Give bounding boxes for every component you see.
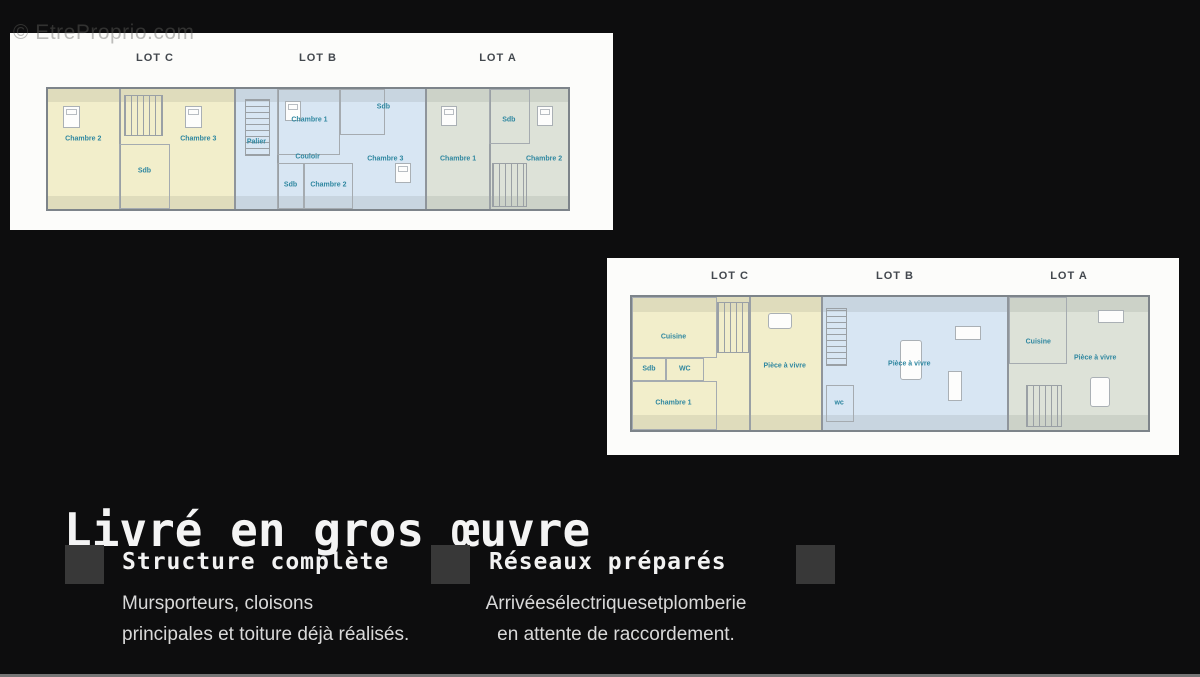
feature-body-structure: Mursporteurs, cloisons principales et to… <box>122 588 432 650</box>
room-label: Chambre 2 <box>310 182 346 189</box>
dining-table-icon <box>1090 377 1110 407</box>
room-label: Sdb <box>642 365 655 372</box>
room-label: Chambre 1 <box>440 155 476 162</box>
bed-icon <box>185 106 202 128</box>
room-label: Chambre 2 <box>526 155 562 162</box>
bathroom-box <box>340 89 385 135</box>
room-label: Chambre 1 <box>655 400 691 407</box>
lot-a-section: Cuisine Pièce à vivre <box>1009 297 1148 430</box>
lot-b-section: Palier Chambre 1 Sdb Couloir Sdb Chambre… <box>234 89 428 209</box>
feature-body-reseaux: Arrivéesélectriquesetplomberie en attent… <box>455 588 777 650</box>
room-label: Sdb <box>377 104 390 111</box>
room-label: Chambre 2 <box>65 136 101 143</box>
feature-bullet-square <box>65 545 104 584</box>
bed-icon <box>537 106 553 126</box>
bed-icon <box>63 106 80 128</box>
room-label: Cuisine <box>1026 339 1051 346</box>
feature-bullet-square <box>431 545 470 584</box>
room-label: Couloir <box>295 154 320 161</box>
building-outline: Cuisine Sdb WC Chambre 1 Pièce à vivre w… <box>630 295 1150 432</box>
lot-b-section: wc Pièce à vivre <box>821 297 1010 430</box>
sofa-icon <box>948 371 962 401</box>
room-label: Cuisine <box>661 333 686 340</box>
feature-line: Mursporteurs, cloisons <box>122 588 432 619</box>
room-label: Chambre 3 <box>367 155 403 162</box>
lot-title-b: LOT B <box>258 52 378 64</box>
feature-line: principales et toiture déjà réalisés. <box>122 619 432 650</box>
sofa-icon <box>1098 310 1124 323</box>
feature-title-structure: Structure complète <box>122 549 389 575</box>
room-label: Pièce à vivre <box>1074 355 1116 362</box>
room-label: Sdb <box>284 182 297 189</box>
bed-icon <box>441 106 457 126</box>
stairs-icon <box>492 163 527 206</box>
bed-icon <box>395 163 411 183</box>
room-label: WC <box>679 365 691 372</box>
lot-title-b: LOT B <box>835 270 955 282</box>
lot-title-a: LOT A <box>438 52 558 64</box>
lot-c-section: Chambre 2 Sdb Chambre 3 <box>48 89 234 209</box>
lot-a-section: Chambre 1 Sdb Chambre 2 <box>427 89 568 209</box>
room-label: wc <box>834 400 843 407</box>
sofa-icon <box>955 326 981 340</box>
room-label: Chambre 3 <box>180 136 216 143</box>
lot-title-c: LOT C <box>670 270 790 282</box>
stairs-icon <box>245 99 270 157</box>
room-label: Sdb <box>502 117 515 124</box>
bathroom-box <box>119 144 171 209</box>
feature-line: Arrivéesélectriquesetplomberie <box>455 588 777 619</box>
lot-c-section: Cuisine Sdb WC Chambre 1 Pièce à vivre <box>632 297 821 430</box>
dining-table-icon <box>768 313 792 329</box>
lot-title-a: LOT A <box>1009 270 1129 282</box>
feature-line: en attente de raccordement. <box>455 619 777 650</box>
room-label: Sdb <box>138 167 151 174</box>
floor-plan-ground-panel: LOT C LOT B LOT A Cuisine Sdb WC Chambre… <box>607 258 1179 455</box>
feature-title-reseaux: Réseaux préparés <box>489 549 727 575</box>
kitchen-box <box>632 297 717 358</box>
room-label: Chambre 1 <box>291 117 327 124</box>
wall <box>749 297 751 430</box>
feature-bullet-square <box>796 545 835 584</box>
stairs-icon <box>717 302 749 353</box>
building-outline: Chambre 2 Sdb Chambre 3 Palier Chambre 1… <box>46 87 570 211</box>
floor-plan-upper-panel: LOT C LOT B LOT A Chambre 2 Sdb Chambre … <box>10 33 613 230</box>
watermark: © EtreProprio.com <box>13 21 195 45</box>
room-label: Pièce à vivre <box>888 360 930 367</box>
lot-title-c: LOT C <box>95 52 215 64</box>
stairs-icon <box>1026 385 1062 428</box>
stairs-icon <box>124 95 163 136</box>
kitchen-box <box>1009 297 1067 364</box>
room-label: Pièce à vivre <box>763 363 805 370</box>
stairs-icon <box>826 308 846 367</box>
room-label: Palier <box>247 138 266 145</box>
